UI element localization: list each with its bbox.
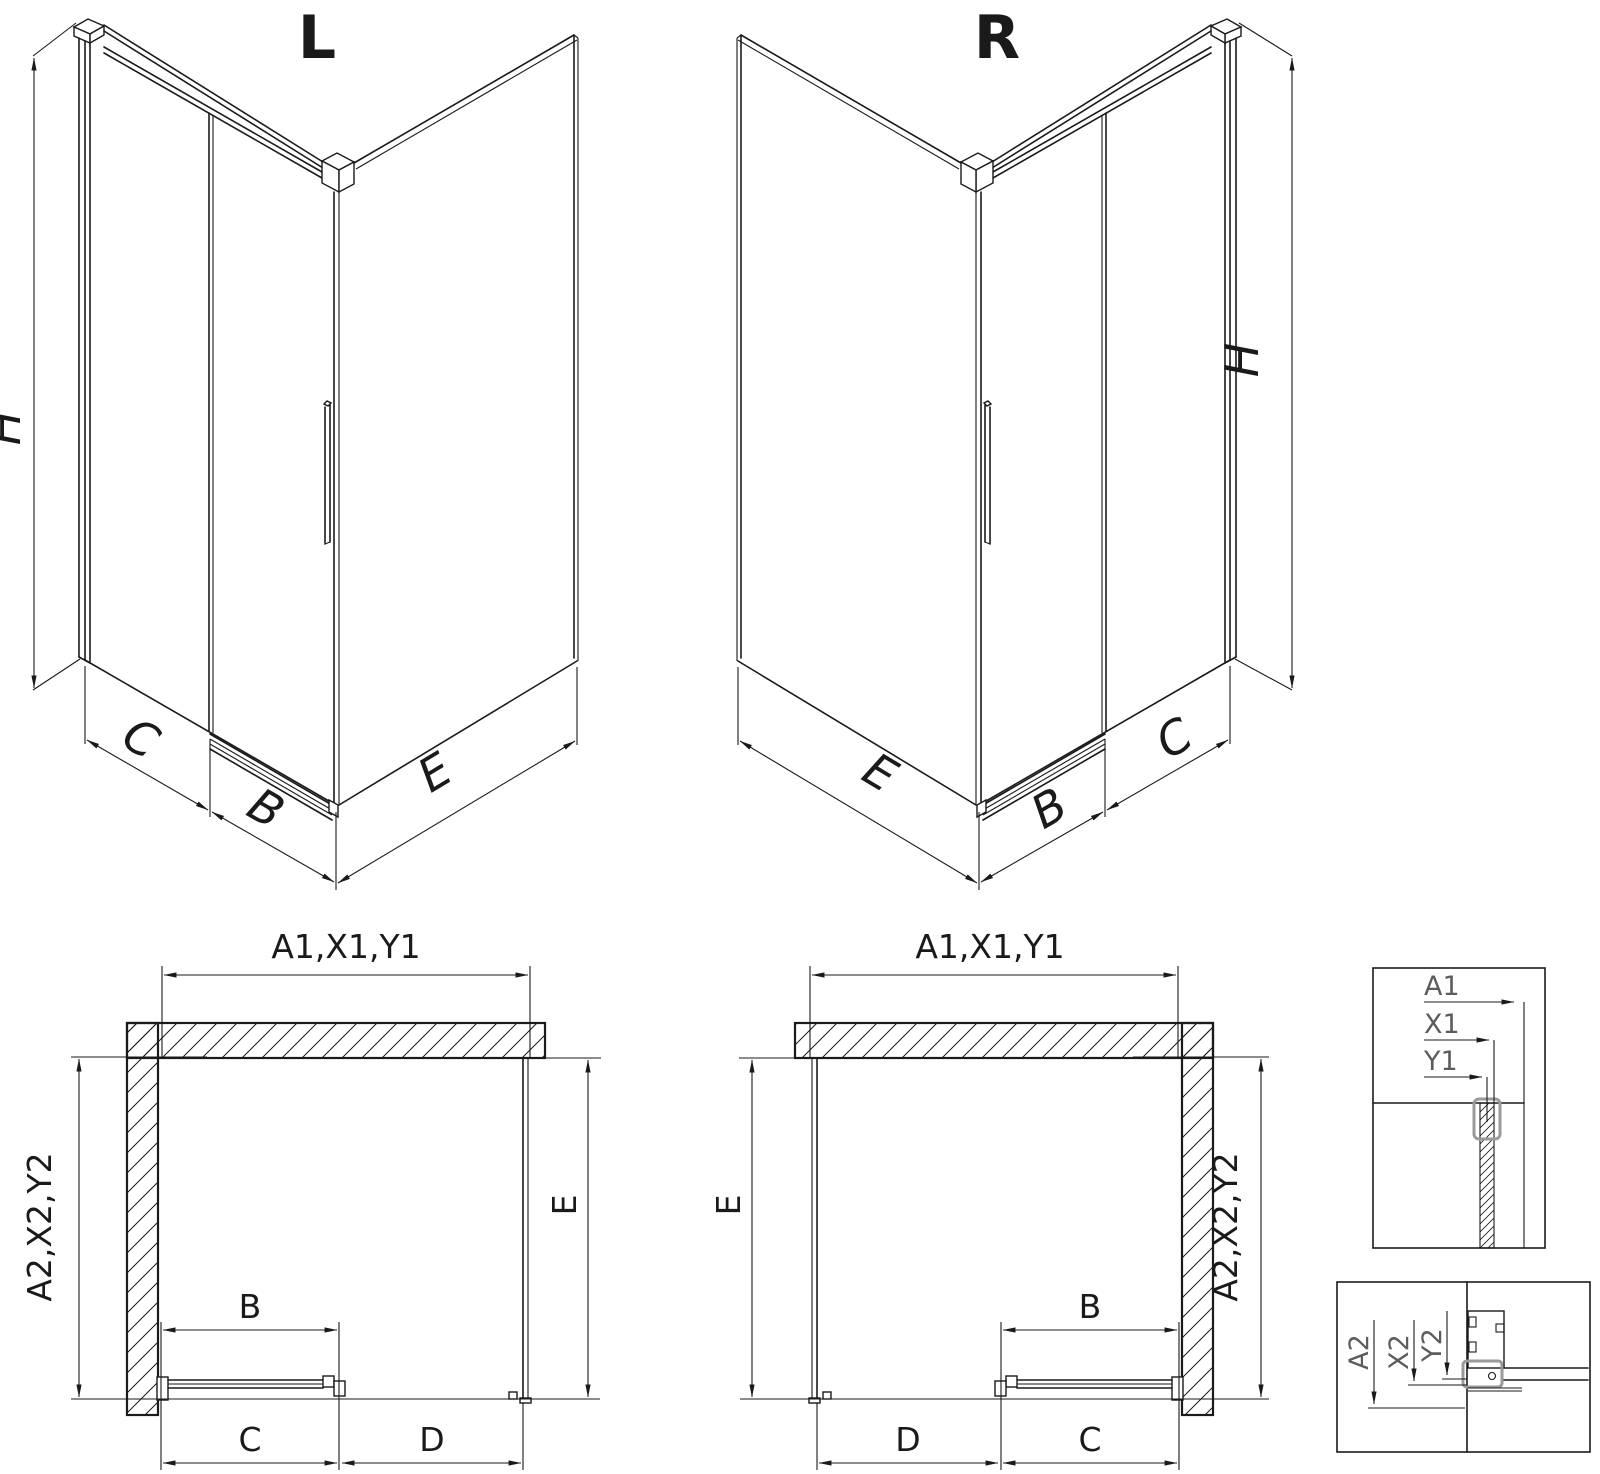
plan-l-dims-bottom: C D: [163, 1403, 523, 1470]
plan-r-dims-bottom: C D: [817, 1403, 1177, 1470]
iso-l-door-handle: [324, 401, 331, 544]
dim-label-a1-l: A1,X1,Y1: [271, 927, 420, 966]
plan-r-wall-top: [795, 1023, 1213, 1058]
plan-r-dim-depth-e: E: [709, 1058, 808, 1397]
view-title-right: R: [974, 3, 1020, 73]
dim-label-a2-detail: A2: [1344, 1334, 1375, 1370]
iso-view-right: H C B E R: [737, 3, 1292, 890]
plan-l-dim-depth-e: E: [532, 1058, 601, 1397]
dim-label-x2-detail: X2: [1384, 1334, 1415, 1370]
detail-a1x1y1: A1 X1 Y1: [1373, 968, 1545, 1248]
dim-label-d-plan-r: D: [895, 1420, 920, 1459]
dim-label-y1-detail: Y1: [1423, 1046, 1458, 1077]
detail2-roller: [1489, 1373, 1496, 1380]
dim-label-e-plan-r: E: [709, 1195, 748, 1216]
iso-r-wall-profile: [1211, 19, 1241, 663]
plan-view-left: A1,X1,Y1 B: [20, 927, 601, 1470]
dim-label-b-r: B: [1022, 777, 1076, 840]
detail2-callout-y2: Y2: [1417, 1311, 1467, 1379]
iso-view-left: H C B E L: [0, 3, 578, 890]
dim-label-x1-detail: X1: [1424, 1009, 1460, 1040]
dim-label-c-plan-r: C: [1078, 1420, 1101, 1459]
iso-r-dim-height: H: [1215, 23, 1292, 690]
dim-label-b-l: B: [239, 777, 293, 840]
plan-r-glass-return: [809, 1058, 820, 1403]
dim-label-height-l: H: [0, 411, 31, 446]
iso-l-corner-block: [322, 153, 354, 192]
dim-label-b-plan-l: B: [239, 1287, 262, 1326]
iso-l-wall-profile: [74, 19, 104, 663]
detail1-callout-y1: Y1: [1423, 1046, 1487, 1122]
iso-r-return-panel: [737, 35, 976, 805]
plan-l-glass-return: [520, 1058, 531, 1403]
dim-label-e-l: E: [408, 742, 461, 803]
iso-r-dims-bottom: C B E: [738, 666, 1230, 890]
shower-enclosure-dimension-diagram: H C B E L: [0, 0, 1600, 1474]
dim-label-height-r: H: [1215, 343, 1269, 378]
detail1-callout-a1: A1: [1424, 971, 1514, 1002]
dim-label-a2-r: A2,X2,Y2: [1206, 1152, 1245, 1301]
iso-r-door-handle: [984, 401, 991, 544]
iso-l-dims-bottom: C B E: [85, 666, 577, 890]
view-title-left: L: [298, 3, 336, 73]
detail-a2x2y2: A2 X2 Y2: [1337, 1282, 1590, 1452]
iso-l-return-panel: [339, 35, 578, 805]
dim-label-d-plan-l: D: [419, 1420, 444, 1459]
dim-label-b-plan-r: B: [1079, 1287, 1102, 1326]
plan-l-wall-top: [127, 1023, 545, 1058]
dim-label-c-plan-l: C: [238, 1420, 261, 1459]
dim-label-y2-detail: Y2: [1417, 1328, 1448, 1363]
detail2-rail-profile: [1463, 1311, 1504, 1387]
technical-drawing-page: H C B E L: [0, 0, 1600, 1474]
dim-label-a1-detail: A1: [1424, 971, 1460, 1002]
dim-label-e-r: E: [854, 742, 907, 803]
plan-l-dim-side: A2,X2,Y2: [20, 1057, 207, 1397]
dim-label-e-plan-l: E: [545, 1195, 584, 1216]
iso-l-dim-height: H: [0, 23, 80, 690]
detail1-glass-section: [1480, 1103, 1494, 1248]
plan-view-right: A1,X1,Y1 B C D: [709, 927, 1269, 1470]
detail2-glass-panel: [1468, 1368, 1588, 1391]
plan-l-wall-left: [127, 1023, 158, 1415]
iso-r-corner-block: [961, 153, 993, 192]
dim-label-a1-r: A1,X1,Y1: [915, 927, 1064, 966]
dim-label-a2-l: A2,X2,Y2: [20, 1152, 59, 1301]
